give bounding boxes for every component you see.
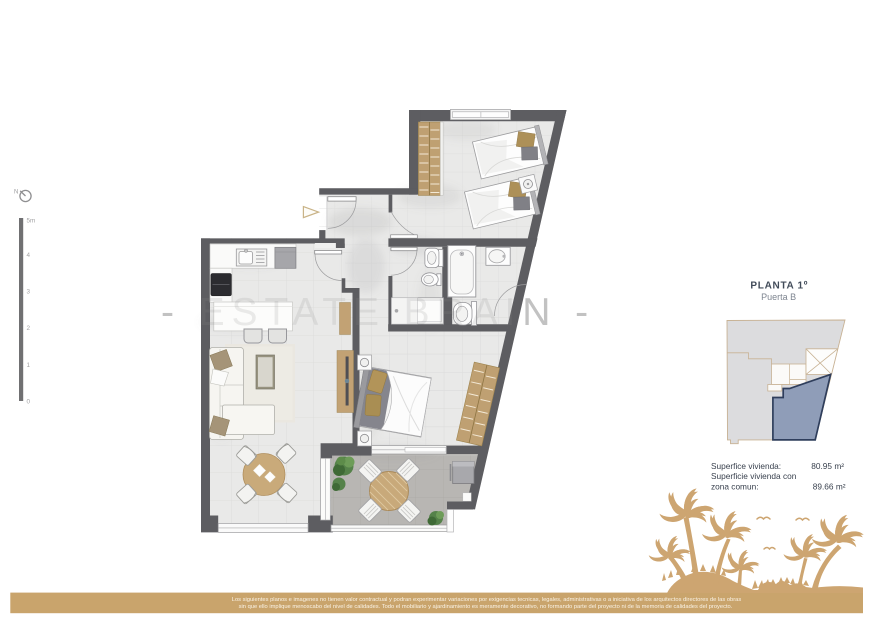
svg-text:89.66 m²: 89.66 m² xyxy=(813,482,846,492)
svg-text:Puerta B: Puerta B xyxy=(761,292,796,302)
svg-text:Los siguientes planos e imagen: Los siguientes planos e imagenes no tien… xyxy=(232,597,742,603)
svg-text:zona comun:: zona comun: xyxy=(711,482,759,492)
svg-text:Superficie vivienda con: Superficie vivienda con xyxy=(711,471,797,481)
svg-text:5m: 5m xyxy=(27,218,36,225)
svg-text:PLANTA 1º: PLANTA 1º xyxy=(750,281,808,292)
svg-text:0: 0 xyxy=(27,399,31,406)
svg-text:Superfice vivienda:: Superfice vivienda: xyxy=(711,461,781,471)
svg-text:sin que ello implique menoscab: sin que ello implique menoscabo del nive… xyxy=(239,604,733,610)
svg-text:80.95 m²: 80.95 m² xyxy=(811,461,844,471)
svg-text:2: 2 xyxy=(27,325,31,332)
svg-text:N: N xyxy=(14,190,18,196)
svg-text:3: 3 xyxy=(27,289,31,296)
svg-text:1: 1 xyxy=(27,362,31,369)
svg-text:- ESTATE BRAIN -: - ESTATE BRAIN - xyxy=(161,291,595,334)
svg-text:4: 4 xyxy=(27,252,31,259)
